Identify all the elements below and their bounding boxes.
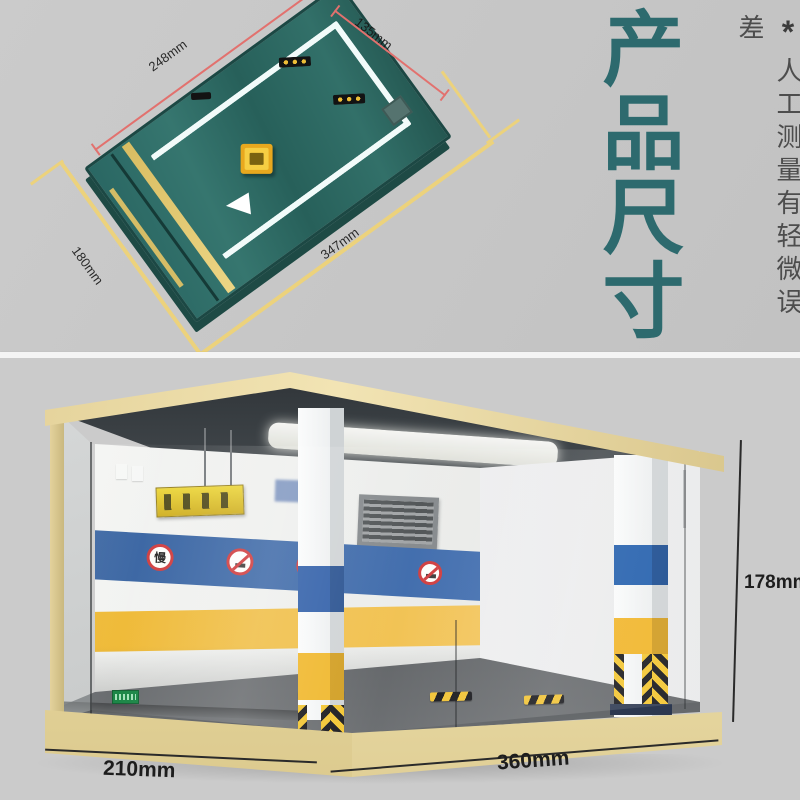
sign-hanger-rod (230, 430, 232, 486)
dim-label-360: 360mm (496, 747, 570, 776)
speed-bump (191, 92, 211, 100)
hanging-sign-text-marks (164, 492, 235, 510)
prohibition-slash-icon (230, 553, 251, 573)
pillar-yellow-band-side (652, 618, 668, 654)
measurement-note: *人工测量有轻微误差 (731, 14, 800, 352)
garage-view-section: 慢 5 (0, 358, 800, 800)
page-title: 产品尺寸 (585, 6, 685, 352)
exit-sign (112, 690, 139, 704)
ventilation-grille (357, 494, 439, 549)
product-dimensions-image: 248mm 135mm 180mm 347mm 产品尺寸 *人工测量有轻微误差 … (0, 0, 800, 800)
slow-sign: 慢 (146, 543, 174, 571)
sign-hanger-rod (204, 428, 206, 486)
no-horn-sign (417, 560, 442, 585)
hazard-stripe (642, 654, 652, 704)
pillar-plinth (610, 704, 672, 715)
wall-sign (132, 466, 143, 481)
dim-label-178: 178mm (744, 572, 800, 594)
pillar-yellow-band (298, 653, 330, 700)
dim-label-180: 180mm (69, 244, 107, 288)
pillar-blue-band (298, 566, 330, 612)
wheel-stop (524, 694, 564, 704)
wall-sign (116, 464, 127, 479)
top-view-section: 248mm 135mm 180mm 347mm 产品尺寸 *人工测量有轻微误差 (0, 0, 800, 352)
asterisk: * (770, 14, 800, 57)
center-pillar (298, 408, 344, 720)
glass-edge (90, 442, 92, 714)
hanging-direction-sign (156, 484, 245, 517)
pillar-yellow-band (614, 618, 652, 654)
dim-label-248: 248mm (146, 37, 190, 75)
speed-bump (333, 93, 365, 105)
prohibition-slash-icon (421, 566, 439, 583)
right-pillar (614, 455, 668, 717)
slow-sign-glyph: 慢 (154, 549, 167, 567)
speed-bump (279, 56, 311, 68)
case-corner-post (50, 422, 64, 722)
pillar-yellow-band-side (330, 653, 344, 700)
dim-label-210: 210mm (103, 757, 176, 784)
no-smoking-sign (226, 548, 254, 576)
direction-arrow (225, 192, 251, 216)
measurement-note-text: 人工测量有轻微误差 (735, 14, 800, 321)
dimension-line-178 (732, 440, 742, 722)
warning-sign-symbol (250, 153, 264, 165)
glass-divider-edge (455, 620, 457, 732)
pillar-blue-band-side (652, 545, 668, 585)
glass-edge (684, 453, 686, 709)
dimension-frame-tick (30, 160, 64, 186)
warning-sign-board (241, 144, 273, 174)
pillar-blue-band (614, 545, 652, 585)
exit-sign-glyphs (115, 694, 136, 700)
hazard-stripe (614, 654, 624, 704)
wheel-stop (430, 691, 472, 701)
pillar-blue-band-side (330, 566, 344, 612)
hazard-stripe-side (652, 654, 668, 704)
dimension-frame-tick (486, 119, 520, 145)
wall-stripe-yellow (90, 605, 486, 652)
